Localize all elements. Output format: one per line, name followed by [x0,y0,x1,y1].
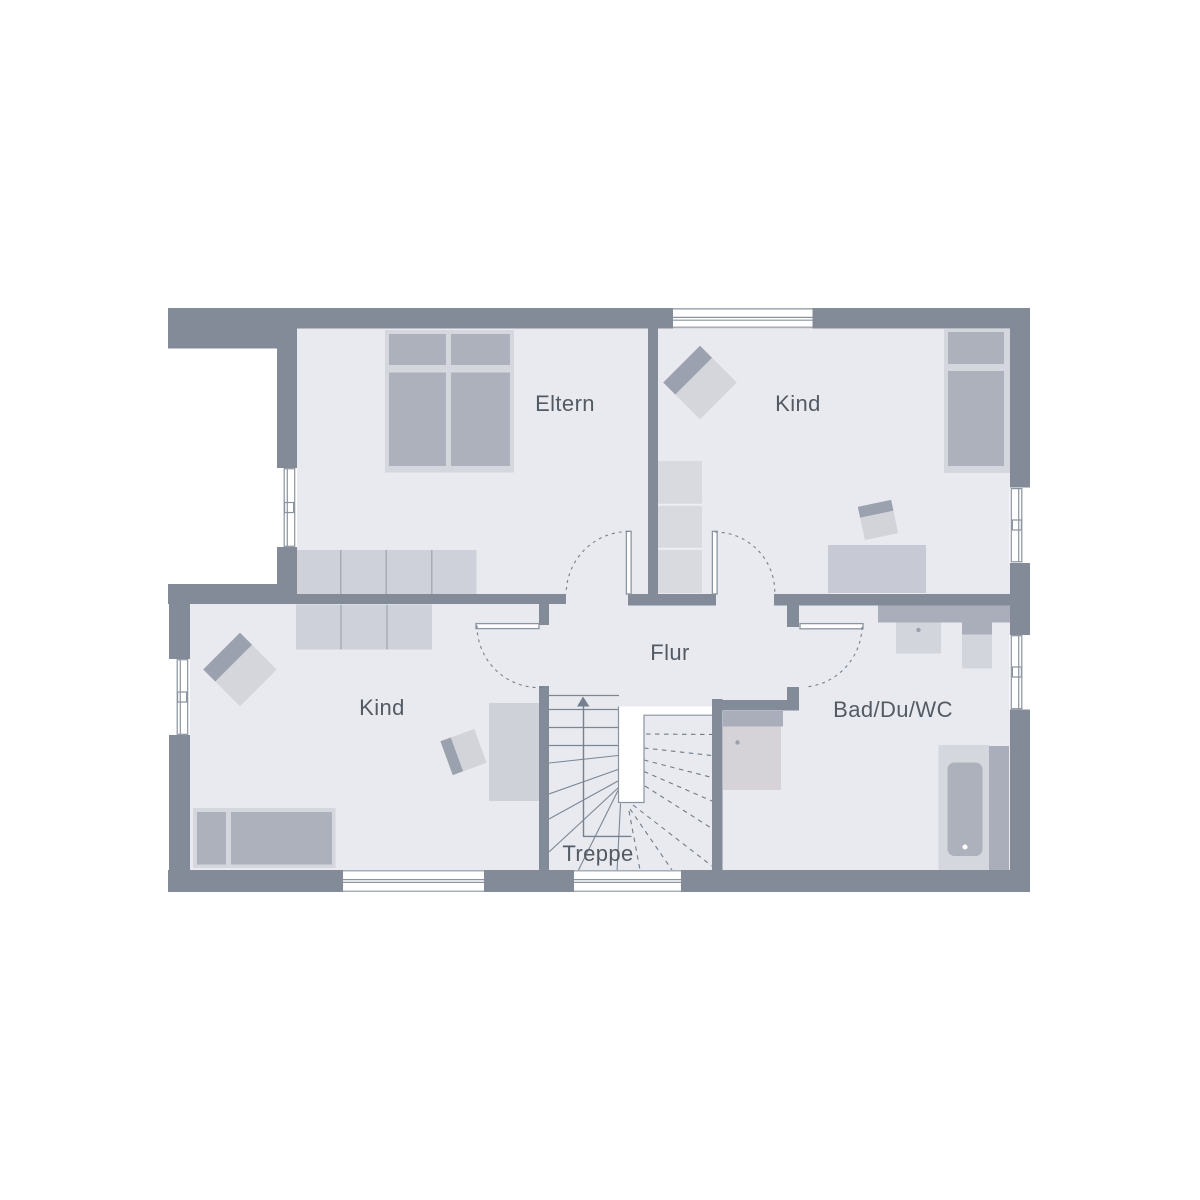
svg-text:Eltern: Eltern [535,391,595,416]
svg-text:Bad/Du/WC: Bad/Du/WC [833,697,953,722]
svg-text:Treppe: Treppe [562,841,633,866]
svg-text:Kind: Kind [359,695,405,720]
svg-text:Flur: Flur [650,640,690,665]
svg-text:Kind: Kind [775,391,821,416]
